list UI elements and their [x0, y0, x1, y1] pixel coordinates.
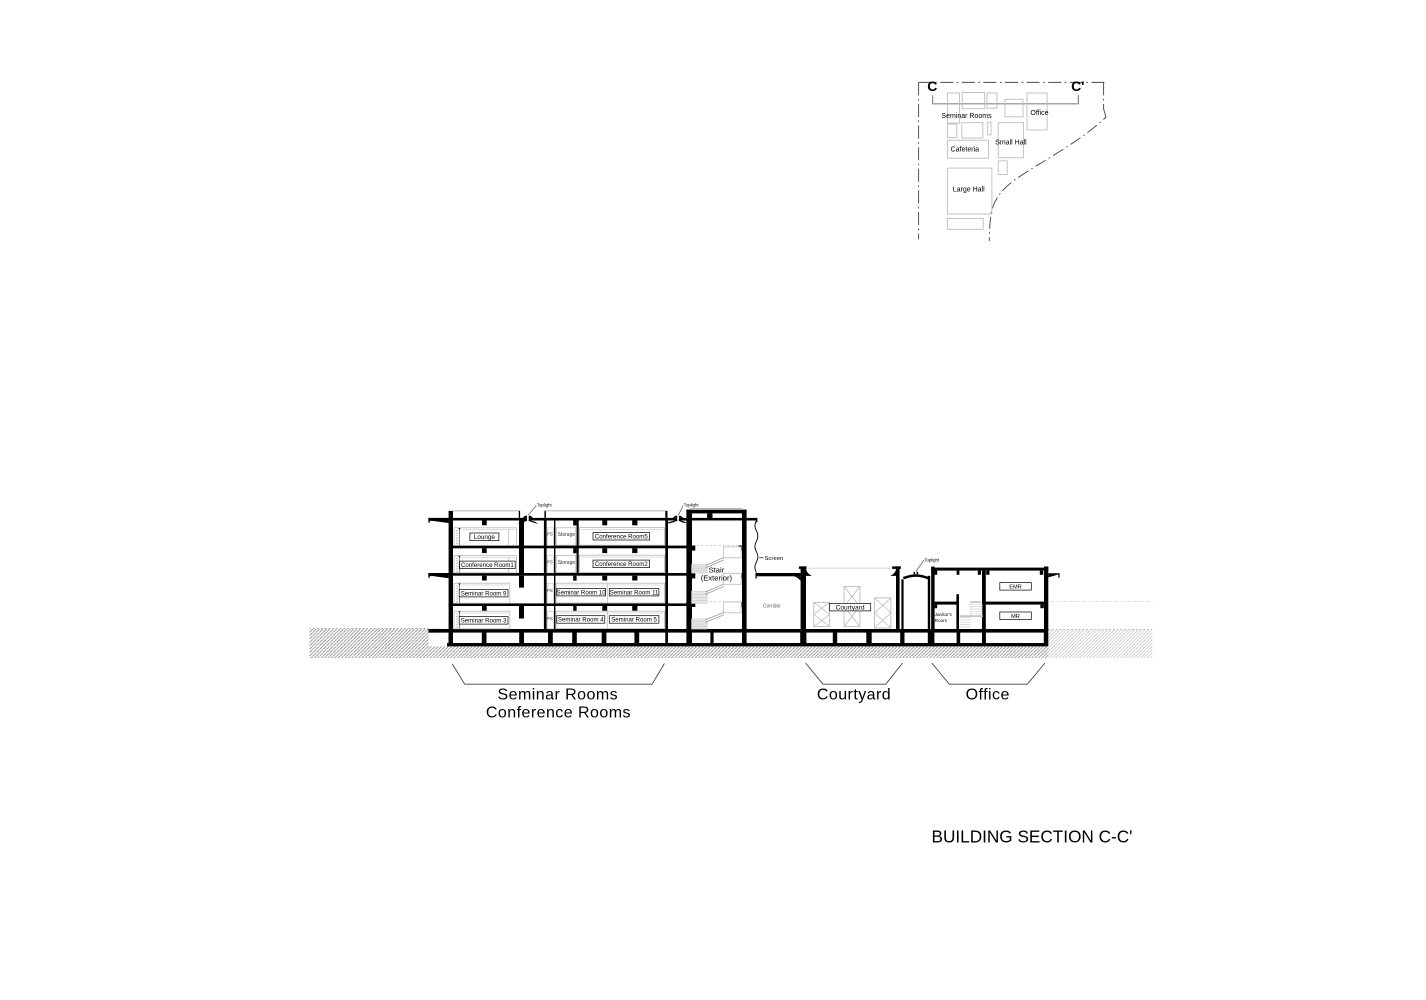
svg-text:Corridor: Corridor	[763, 603, 781, 609]
svg-text:PS: PS	[547, 532, 553, 537]
svg-text:Storage: Storage	[558, 532, 576, 538]
svg-text:Large Hall: Large Hall	[953, 186, 985, 193]
svg-text:Conference Rooms: Conference Rooms	[486, 704, 631, 721]
svg-text:Office: Office	[1030, 110, 1048, 117]
svg-text:Office: Office	[966, 686, 1010, 703]
svg-text:Seminar Room 9: Seminar Room 9	[461, 590, 507, 597]
svg-text:Lounge: Lounge	[474, 534, 496, 541]
svg-text:PS: PS	[547, 560, 553, 565]
svg-text:Toplight: Toplight	[684, 502, 700, 507]
svg-text:PS: PS	[547, 616, 553, 621]
svg-text:Storage: Storage	[558, 560, 576, 566]
svg-text:Toplight: Toplight	[924, 558, 940, 563]
svg-text:Seminar Room 10: Seminar Room 10	[557, 589, 607, 596]
svg-text:Seminar Room 5: Seminar Room 5	[611, 617, 657, 624]
svg-text:Courtyard: Courtyard	[817, 686, 891, 703]
svg-text:BUILDING SECTION C-C': BUILDING SECTION C-C'	[932, 827, 1133, 847]
svg-text:EMR: EMR	[1009, 584, 1021, 590]
svg-text:Seminar Room 4: Seminar Room 4	[558, 617, 604, 624]
svg-text:Conference Room1: Conference Room1	[461, 562, 514, 569]
svg-text:Courtyard: Courtyard	[836, 605, 865, 612]
svg-text:Toplight: Toplight	[537, 502, 553, 507]
svg-text:Room: Room	[935, 618, 948, 623]
svg-text:Cafeteria: Cafeteria	[951, 147, 980, 154]
svg-text:Janitor's: Janitor's	[935, 612, 953, 617]
svg-text:C': C'	[1071, 78, 1084, 94]
svg-text:Seminar Rooms: Seminar Rooms	[941, 113, 992, 120]
svg-text:(Exterior): (Exterior)	[701, 573, 733, 582]
svg-text:Conference Room2: Conference Room2	[595, 561, 648, 568]
svg-text:Seminar Room 3: Seminar Room 3	[461, 618, 507, 625]
svg-text:Conference Room5: Conference Room5	[595, 533, 648, 540]
svg-text:Small Hall: Small Hall	[995, 140, 1027, 147]
svg-text:Seminar Room 11: Seminar Room 11	[610, 589, 659, 596]
svg-text:Seminar Rooms: Seminar Rooms	[498, 686, 619, 703]
svg-text:MR: MR	[1011, 614, 1020, 620]
svg-text:C: C	[927, 78, 937, 94]
svg-text:PS: PS	[547, 588, 553, 593]
svg-text:Screen: Screen	[765, 556, 784, 562]
